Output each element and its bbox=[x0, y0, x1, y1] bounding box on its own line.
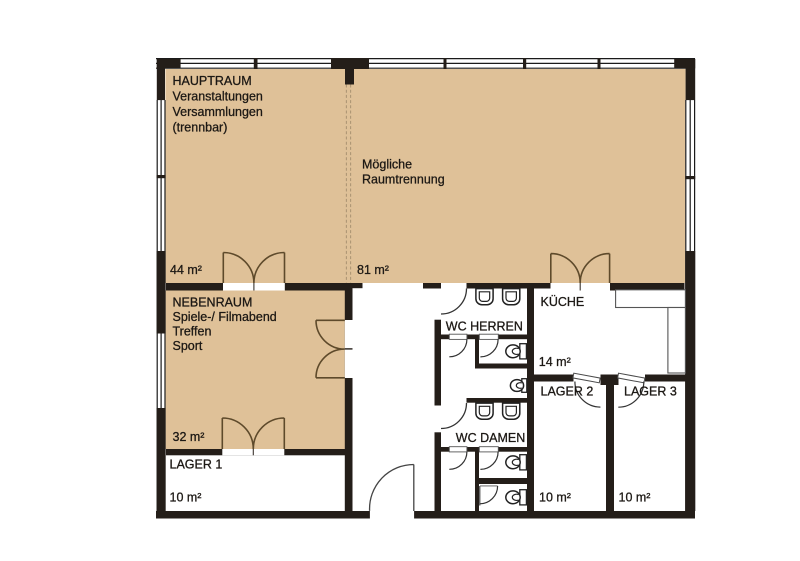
svg-text:WC HERREN: WC HERREN bbox=[446, 319, 523, 333]
svg-text:KÜCHE: KÜCHE bbox=[541, 295, 585, 309]
svg-text:Raumtrennung: Raumtrennung bbox=[362, 172, 445, 186]
svg-text:WC DAMEN: WC DAMEN bbox=[456, 431, 525, 445]
svg-text:LAGER 3: LAGER 3 bbox=[624, 384, 677, 398]
svg-text:LAGER 2: LAGER 2 bbox=[541, 384, 594, 398]
svg-text:LAGER 1: LAGER 1 bbox=[170, 457, 223, 471]
svg-text:HAUPTRAUM: HAUPTRAUM bbox=[173, 74, 252, 88]
svg-text:10 m²: 10 m² bbox=[170, 491, 202, 505]
svg-text:81 m²: 81 m² bbox=[357, 263, 389, 277]
svg-text:Spiele-/ Filmabend: Spiele-/ Filmabend bbox=[173, 310, 277, 324]
svg-text:10 m²: 10 m² bbox=[539, 491, 571, 505]
svg-text:10 m²: 10 m² bbox=[619, 491, 651, 505]
svg-text:Sport: Sport bbox=[173, 339, 203, 353]
svg-text:NEBENRAUM: NEBENRAUM bbox=[173, 295, 253, 309]
svg-text:14 m²: 14 m² bbox=[539, 355, 571, 369]
svg-text:Veranstaltungen: Veranstaltungen bbox=[173, 90, 263, 104]
svg-text:Treffen: Treffen bbox=[173, 325, 212, 339]
svg-text:32 m²: 32 m² bbox=[173, 430, 205, 444]
svg-text:Versammlungen: Versammlungen bbox=[173, 105, 263, 119]
svg-text:(trennbar): (trennbar) bbox=[173, 120, 228, 134]
svg-text:Mögliche: Mögliche bbox=[362, 158, 412, 172]
svg-text:44 m²: 44 m² bbox=[170, 263, 202, 277]
